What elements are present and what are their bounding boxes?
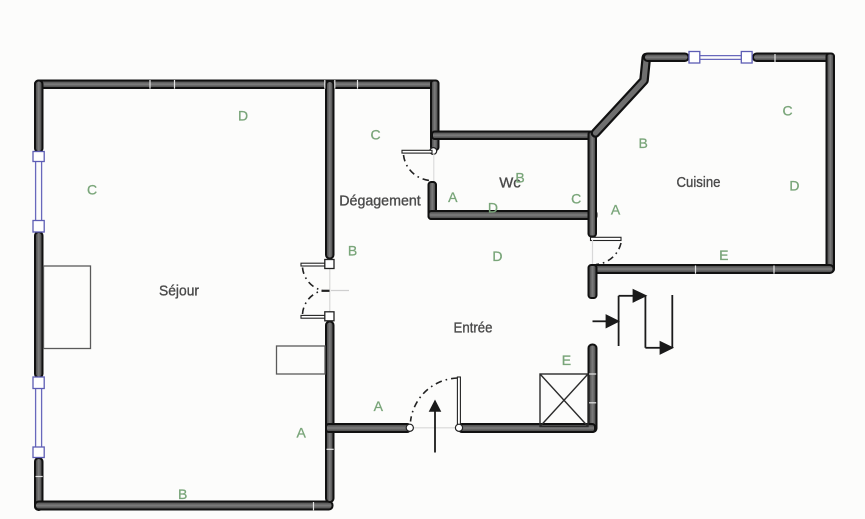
svg-text:A: A bbox=[297, 424, 307, 440]
svg-text:B: B bbox=[515, 170, 524, 186]
svg-text:C: C bbox=[87, 182, 97, 198]
svg-text:D: D bbox=[492, 248, 502, 264]
svg-text:A: A bbox=[448, 189, 458, 205]
svg-text:C: C bbox=[370, 126, 380, 142]
svg-text:Cuisine: Cuisine bbox=[677, 174, 721, 191]
svg-text:C: C bbox=[571, 191, 581, 207]
svg-text:B: B bbox=[348, 243, 357, 259]
svg-text:D: D bbox=[488, 200, 498, 216]
svg-text:C: C bbox=[782, 102, 792, 118]
svg-text:A: A bbox=[374, 398, 384, 414]
svg-text:Entrée: Entrée bbox=[454, 320, 493, 337]
svg-text:B: B bbox=[178, 486, 187, 502]
svg-text:Séjour: Séjour bbox=[159, 283, 199, 300]
svg-text:A: A bbox=[611, 202, 621, 218]
svg-text:E: E bbox=[719, 247, 728, 263]
svg-text:D: D bbox=[789, 177, 799, 193]
svg-text:Dégagement: Dégagement bbox=[339, 192, 421, 209]
svg-text:E: E bbox=[562, 352, 571, 368]
svg-text:D: D bbox=[238, 107, 248, 123]
svg-text:B: B bbox=[639, 135, 648, 151]
